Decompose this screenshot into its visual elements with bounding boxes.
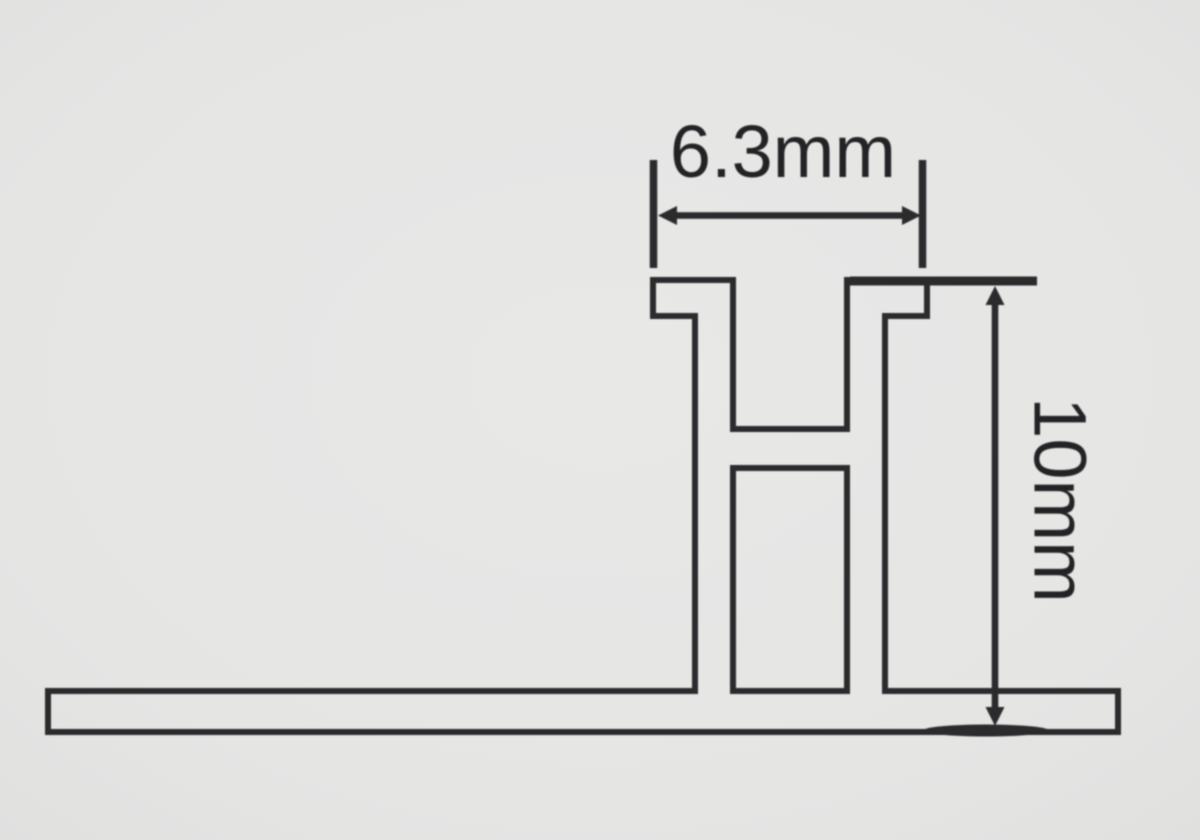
svg-text:6.3mm: 6.3mm	[670, 110, 896, 193]
svg-text:10mm: 10mm	[1018, 397, 1101, 603]
